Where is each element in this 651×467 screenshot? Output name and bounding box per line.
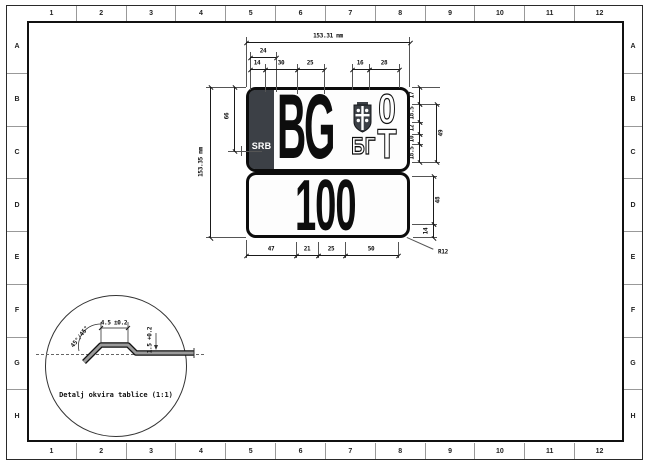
dimension-line: [246, 255, 296, 256]
drawing-sheet: 123456789101112 123456789101112 ABCDEFGH…: [0, 0, 651, 467]
dimension-line: [419, 87, 420, 104]
extension-line: [246, 37, 247, 87]
plate-city-code: BG: [277, 81, 333, 173]
plate-cyrillic-code: БГ: [351, 135, 374, 159]
grid-cell: C: [7, 127, 27, 180]
grid-strip-right: ABCDEFGH: [624, 21, 642, 442]
grid-cell: 5: [226, 443, 276, 459]
grid-cell: 11: [525, 443, 575, 459]
extension-line: [412, 87, 440, 88]
grid-cell: G: [7, 338, 27, 391]
grid-cell: 9: [426, 6, 476, 21]
grid-cell: 4: [176, 443, 226, 459]
dimension-line: [369, 69, 399, 70]
dim-label: 21: [304, 246, 311, 253]
dimension-line: [210, 87, 211, 238]
grid-cell: D: [7, 179, 27, 232]
dim-label: 25: [328, 246, 335, 253]
dimension-line: [345, 255, 398, 256]
grid-cell: 12: [575, 443, 624, 459]
dimension-line: [318, 255, 345, 256]
grid-cell: 8: [376, 6, 426, 21]
dimension-line: [265, 69, 297, 70]
dimension-line: [419, 104, 420, 122]
grid-strip-top: 123456789101112: [27, 6, 624, 21]
dim-label-total-width: 153.31 mm: [313, 33, 343, 40]
grid-cell: 2: [77, 6, 127, 21]
dim-label: 14: [423, 228, 430, 235]
grid-cell: 11: [525, 6, 575, 21]
grid-cell: D: [624, 179, 642, 232]
dimension-line: [352, 69, 369, 70]
dim-label: 30: [278, 60, 285, 67]
grid-strip-bottom: 123456789101112: [27, 443, 624, 459]
grid-cell: B: [7, 74, 27, 127]
dimension-line: [234, 87, 235, 151]
dim-label: 48: [435, 197, 442, 204]
dim-label: 14: [254, 60, 261, 67]
serbian-shield-icon: [352, 102, 373, 134]
dimension-line: [250, 57, 276, 58]
extension-line: [241, 146, 242, 156]
grid-cell: E: [7, 232, 27, 285]
detail-caption: Detalj okvira tablice (1:1): [56, 391, 176, 399]
grid-cell: B: [624, 74, 642, 127]
grid-cell: A: [624, 21, 642, 74]
grid-cell: 7: [326, 443, 376, 459]
grid-cell: F: [624, 285, 642, 338]
dim-label: 49: [438, 130, 445, 137]
grid-cell: 5: [226, 6, 276, 21]
grid-cell: 6: [276, 443, 326, 459]
grid-cell: 12: [575, 6, 624, 21]
plate-serial-bottom: T: [377, 123, 397, 165]
grid-cell: H: [7, 390, 27, 442]
dim-label: 18.5: [409, 106, 416, 119]
dim-label: 18.5: [409, 146, 416, 159]
frame-profile-section: [36, 288, 208, 378]
plate-blue-band: [249, 90, 274, 169]
dimension-line: [419, 144, 420, 162]
grid-cell: H: [624, 390, 642, 442]
dim-label: 47: [268, 246, 275, 253]
grid-cell: 9: [426, 443, 476, 459]
dim-label-total-height: 153.35 mm: [198, 147, 205, 177]
dim-label: 10: [409, 136, 416, 143]
dim-label: 24: [260, 48, 267, 55]
grid-cell: 6: [276, 6, 326, 21]
dim-label: 28: [381, 60, 388, 67]
dim-label: 66: [224, 113, 231, 120]
grid-cell: E: [624, 232, 642, 285]
dim-label: 17: [409, 92, 416, 99]
dimension-line: [296, 255, 318, 256]
grid-cell: F: [7, 285, 27, 338]
grid-strip-left: ABCDEFGH: [7, 21, 27, 442]
grid-cell: 10: [475, 6, 525, 21]
dimension-line: [433, 224, 434, 238]
dimension-line: [250, 69, 265, 70]
grid-cell: 1: [27, 443, 77, 459]
grid-cell: A: [7, 21, 27, 74]
dimension-line: [246, 42, 410, 43]
detail-dim-plateau: 4.5 ±0.2: [101, 320, 128, 327]
grid-cell: 3: [127, 443, 177, 459]
grid-cell: 10: [475, 443, 525, 459]
dim-label: 12: [409, 125, 416, 132]
grid-cell: 2: [77, 443, 127, 459]
dim-label: 50: [368, 246, 375, 253]
grid-cell: G: [624, 338, 642, 391]
grid-cell: 1: [27, 6, 77, 21]
dim-label-radius: R12: [438, 249, 448, 256]
plate-number: 100: [295, 170, 355, 242]
grid-cell: 8: [376, 443, 426, 459]
dim-label: 25: [307, 60, 314, 67]
dimension-line: [297, 69, 324, 70]
dim-label: 16: [357, 60, 364, 67]
grid-cell: 3: [127, 6, 177, 21]
detail-dim-thickness: 1.5 +0.2: [147, 327, 154, 354]
grid-cell: 7: [326, 6, 376, 21]
grid-cell: 4: [176, 6, 226, 21]
plate-country-label: SRB: [249, 141, 274, 151]
grid-cell: C: [624, 127, 642, 180]
